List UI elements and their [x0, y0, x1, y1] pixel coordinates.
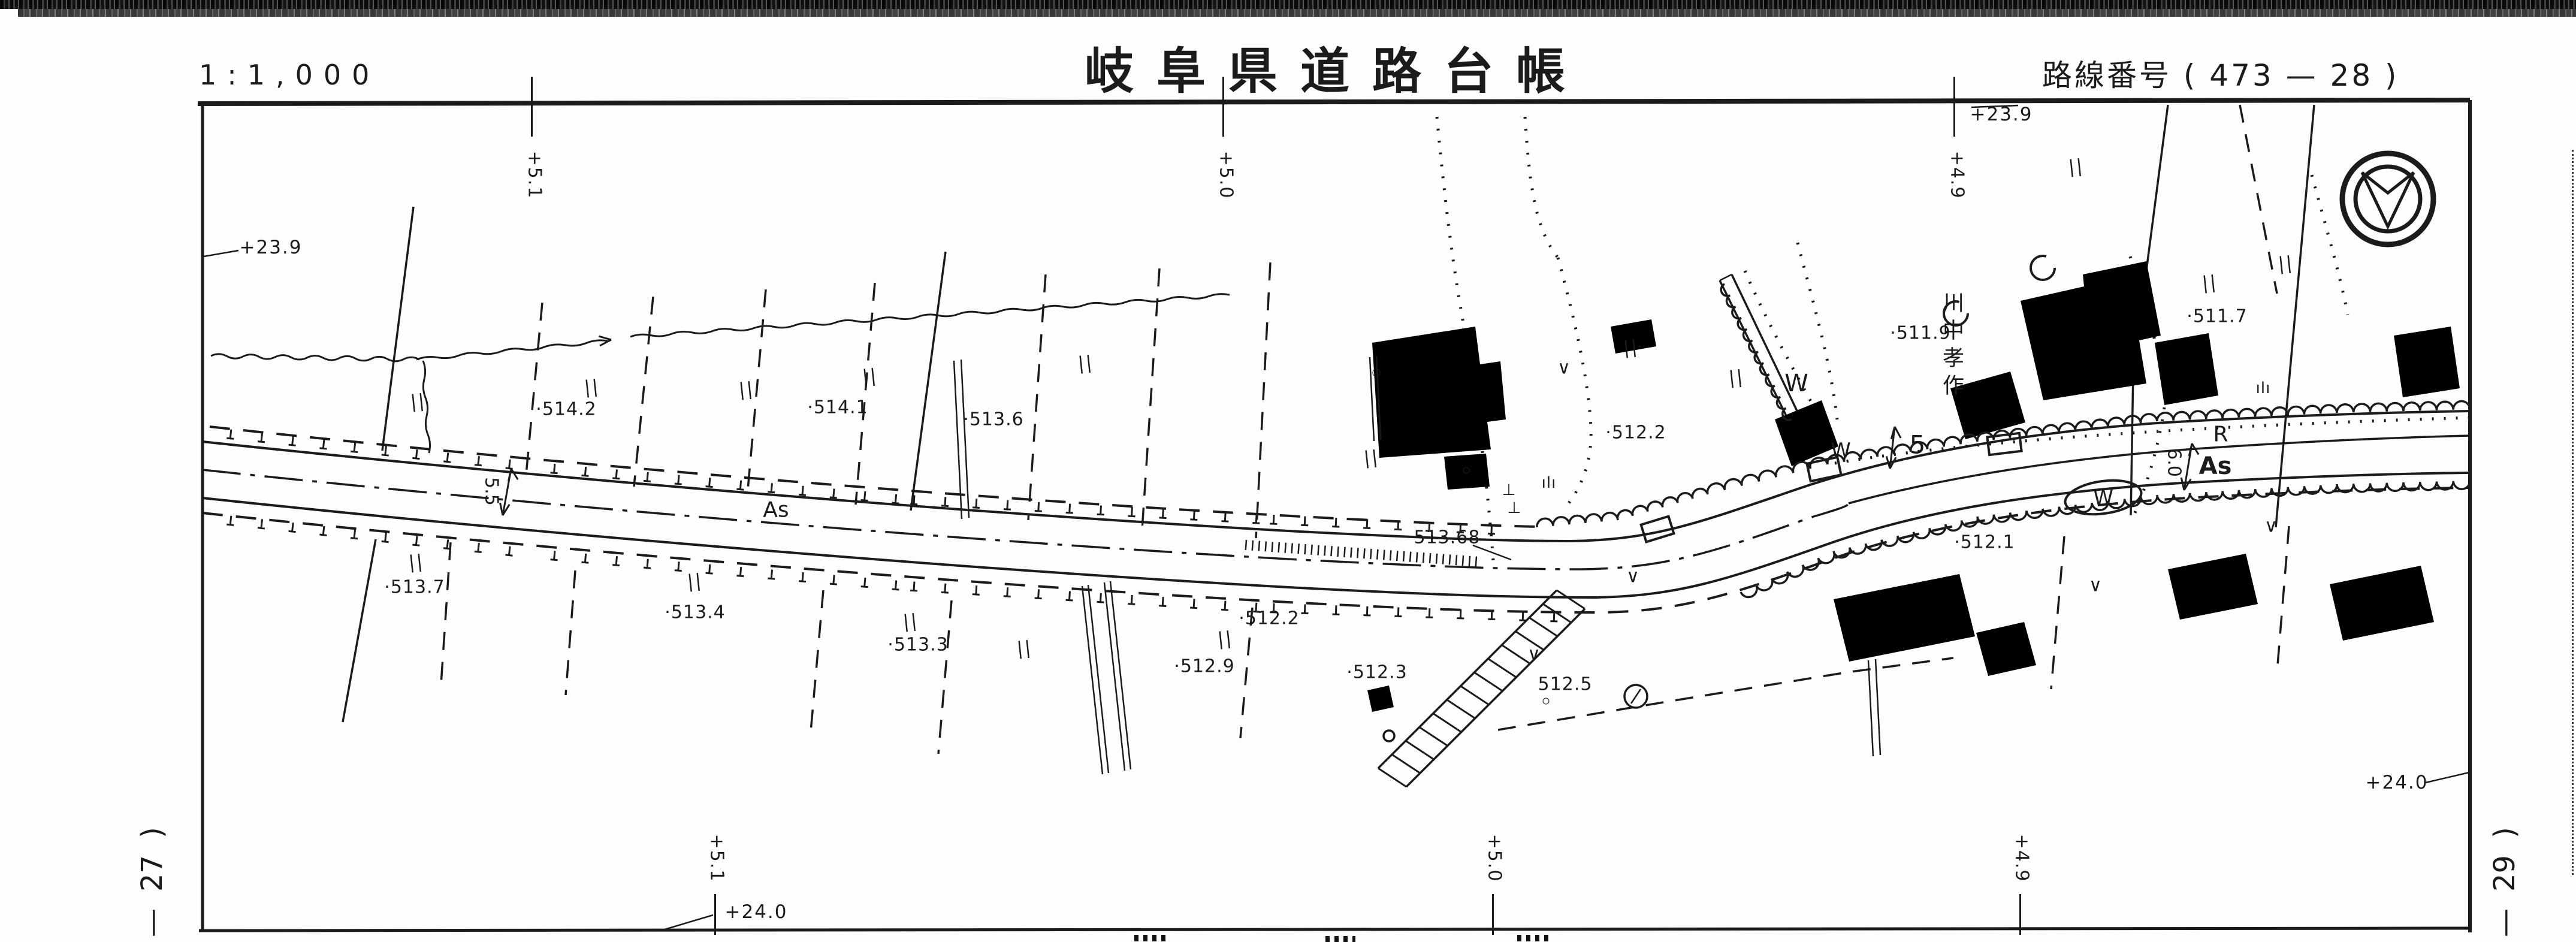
paddy-symbol: ||	[583, 376, 601, 398]
paddy-symbol: ||	[2067, 155, 2085, 178]
paddy-symbol: ||	[409, 390, 427, 413]
road-label: 6.0	[2164, 448, 2185, 477]
clipped-text-sliver	[1134, 935, 1168, 941]
paddy-symbol: ||	[738, 378, 756, 401]
road-label: W	[1831, 439, 1851, 463]
spot-elevation: ·511.7	[2187, 306, 2247, 327]
grid-tick-label: +5.0	[1216, 151, 1237, 200]
ground-symbol: ⊥	[1508, 499, 1521, 517]
grass-symbol: ∨	[2264, 516, 2278, 537]
road-label: As	[763, 498, 789, 523]
grass-symbol: ∨	[1626, 566, 1639, 587]
spot-elevation: ·514.1	[807, 397, 868, 418]
grid-tick-label: +5.0	[1484, 834, 1505, 883]
map-frame	[198, 100, 2470, 932]
road-register-sheet: 1:1,000 岐阜県道路台帳 路線番号 ( 473 — 28 ) +23.9 …	[0, 0, 2576, 942]
road-label: 5	[1910, 430, 1926, 460]
road-label: 川中孝作	[1935, 291, 1967, 401]
grid-tick	[714, 894, 716, 935]
grid-tick-label: +4.9	[1947, 151, 1968, 200]
road-label: W	[1784, 370, 1808, 397]
paddy-symbol: ||	[1728, 366, 1745, 389]
spot-elevation: ·512.1	[1954, 532, 2015, 553]
road-label: R	[2213, 422, 2228, 447]
paddy-symbol: ||	[407, 551, 425, 573]
spot-elevation: ·513.3	[887, 635, 948, 656]
grid-tick	[531, 77, 533, 137]
road-label: 5.5	[481, 477, 502, 506]
paddy-symbol: ||	[1016, 637, 1034, 660]
north-arrow-icon	[2342, 153, 2433, 244]
spot-elevation: ·513.6	[963, 409, 1023, 430]
grass-symbol: ∨	[2089, 575, 2102, 596]
clipped-text-sliver	[1517, 935, 1550, 941]
ground-symbol: ⊥	[1502, 481, 1516, 499]
grid-tick-label: +5.1	[524, 151, 545, 200]
grid-tick	[1492, 894, 1494, 935]
map-canvas	[0, 0, 2576, 942]
paddy-symbol: ||	[2201, 271, 2219, 294]
grass-symbol: ∨	[1557, 358, 1571, 379]
paddy-symbol: ||	[1363, 446, 1381, 469]
clipped-text-sliver	[1325, 936, 1355, 942]
grid-tick-label: +4.9	[2012, 834, 2033, 883]
spot-elevation: ·512.3	[1346, 662, 1407, 683]
waste-symbol: ılı	[2256, 379, 2271, 397]
spot-elevation: 513.68	[1414, 527, 1481, 548]
spot-elevation: ·513.4	[665, 602, 725, 623]
paddy-symbol: ||	[686, 570, 704, 593]
spot-elevation: 512.5	[1538, 674, 1593, 695]
paddy-symbol: ||	[861, 365, 879, 388]
spot-elevation: ·512.2	[1239, 608, 1299, 629]
paddy-symbol: ||	[1622, 336, 1640, 359]
spot-elevation: ·512.2	[1605, 422, 1666, 443]
grid-tick	[2019, 894, 2021, 935]
paddy-symbol: ||	[902, 610, 920, 633]
spot-elevation: ·513.7	[384, 577, 445, 598]
road-label: As	[2199, 452, 2232, 480]
waste-symbol: ılı	[1542, 474, 1557, 492]
grid-tick	[1222, 77, 1224, 137]
paddy-symbol: ||	[1216, 627, 1234, 650]
spot-elevation: ·514.2	[536, 399, 596, 420]
spot-elevation: ·512.9	[1174, 656, 1234, 677]
paddy-symbol: ||	[2277, 252, 2295, 275]
grid-tick-label: +5.1	[706, 834, 727, 883]
road-label: W	[2093, 486, 2113, 510]
paddy-symbol: ||	[1077, 352, 1095, 375]
grid-tick	[1953, 77, 1955, 137]
grass-symbol: ∨	[1527, 644, 1541, 665]
